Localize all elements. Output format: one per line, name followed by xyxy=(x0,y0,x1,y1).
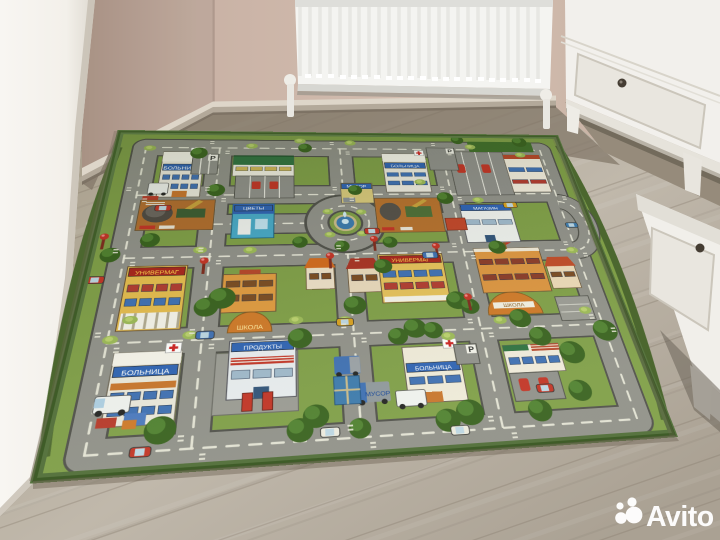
svg-text:Avito: Avito xyxy=(646,501,714,533)
